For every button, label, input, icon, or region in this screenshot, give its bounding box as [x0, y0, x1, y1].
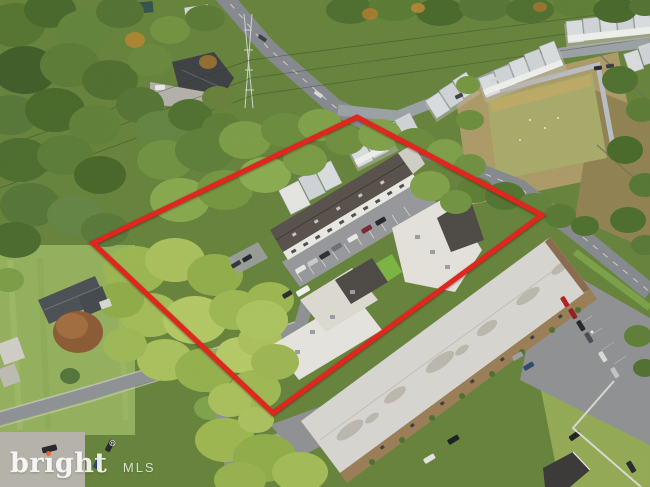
logo-i-dot-icon	[46, 451, 51, 456]
logo-text-pre: br	[10, 448, 44, 479]
registered-mark: ®	[108, 438, 117, 448]
logo-mls-text: MLS	[123, 460, 156, 475]
logo-text-post: ght	[55, 448, 107, 479]
aerial-scene	[0, 0, 650, 487]
grain-overlay	[0, 0, 650, 487]
brightmls-watermark: brıght® MLS	[10, 448, 156, 479]
aerial-photo: brıght® MLS	[0, 0, 650, 487]
brightmls-logo: brıght®	[10, 448, 116, 479]
